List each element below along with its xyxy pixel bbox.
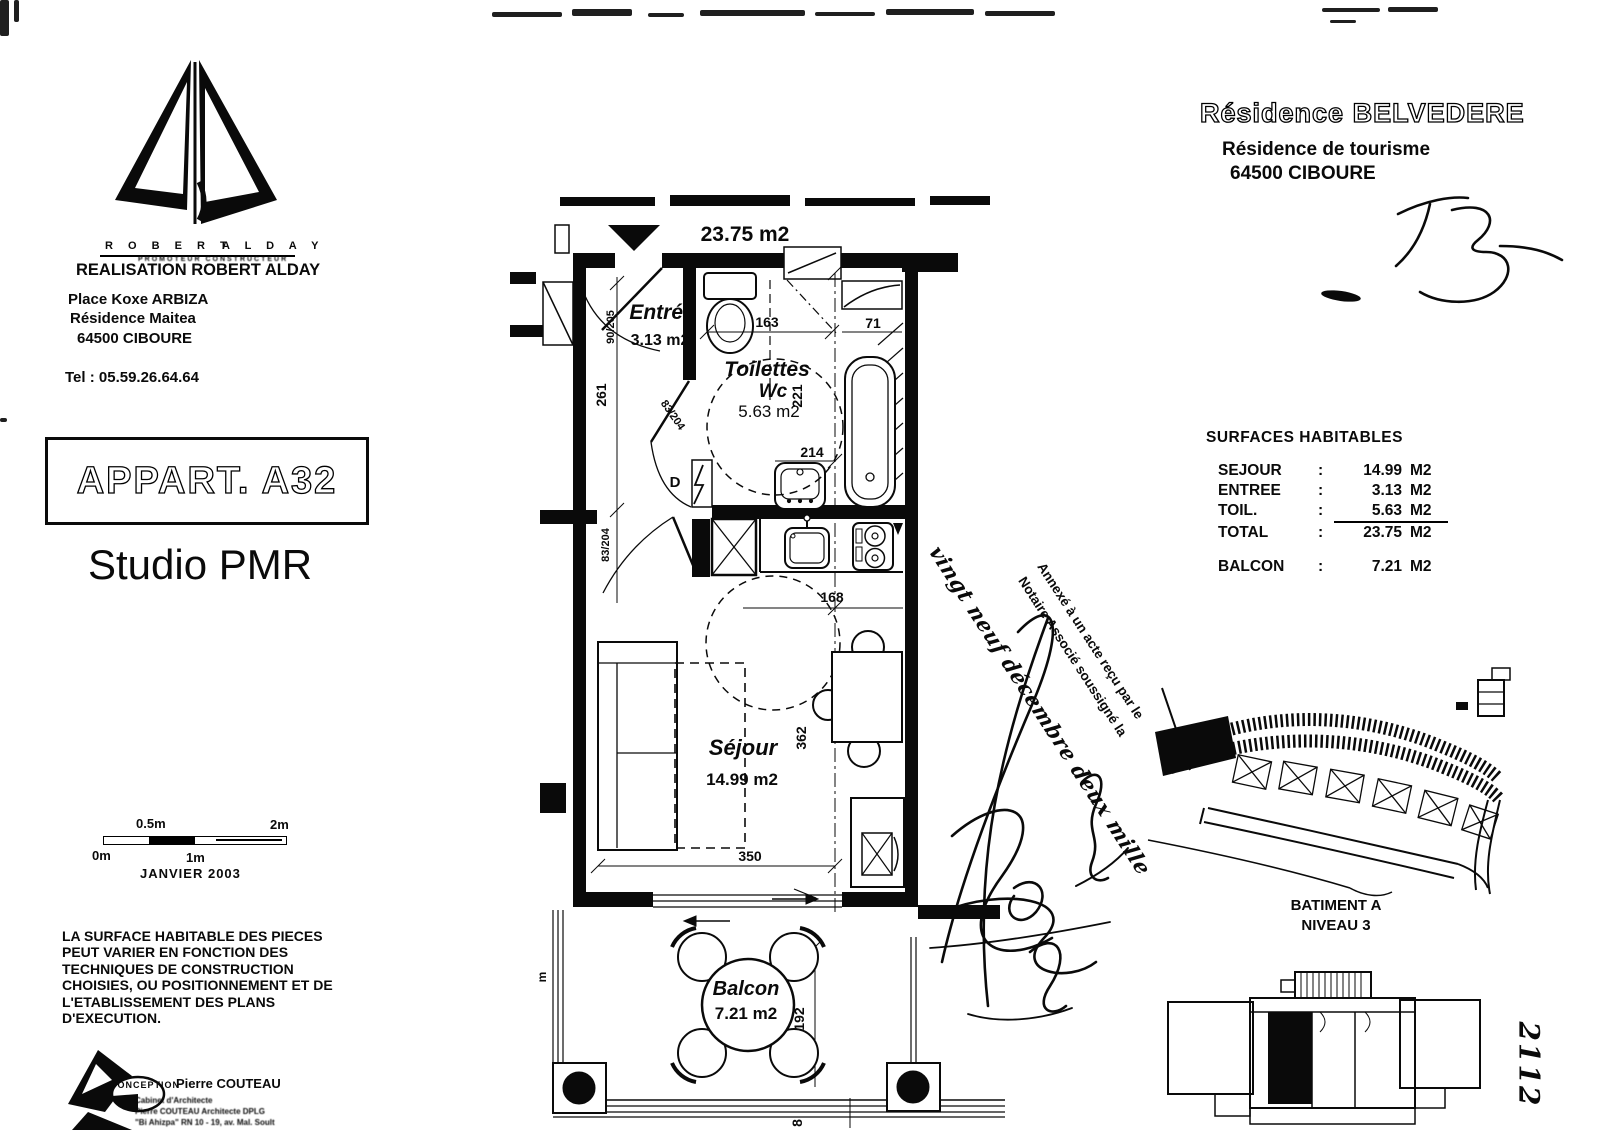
handwritten-overlay	[0, 0, 1600, 1130]
handwritten-t3-mark	[1396, 198, 1562, 302]
ink-smudge	[1320, 288, 1361, 303]
notary-paraph	[1076, 775, 1128, 886]
floor-plan-sheet: R O B E R T A L D A Y PROMOTEUR CONSTRUC…	[0, 0, 1600, 1130]
notary-signature	[930, 615, 1110, 1019]
